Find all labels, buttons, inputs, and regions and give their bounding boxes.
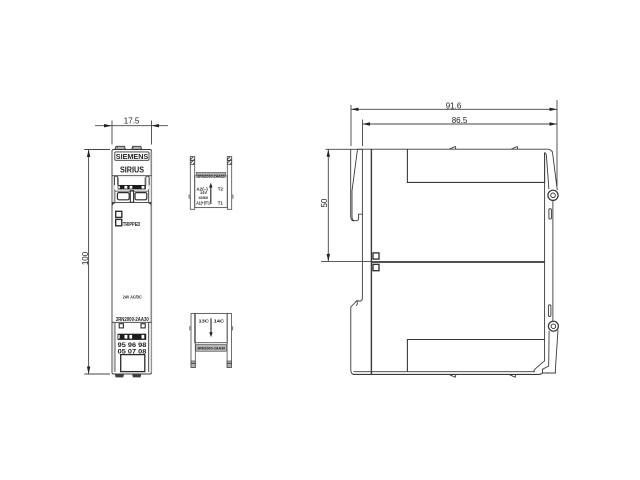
svg-text:24V AC/DC: 24V AC/DC <box>123 294 143 299</box>
svg-text:A1(+)/T1: A1(+)/T1 <box>196 201 210 206</box>
svg-text:100: 100 <box>81 251 90 265</box>
svg-text:3RN2000-2AA30: 3RN2000-2AA30 <box>197 175 225 179</box>
svg-text:13C: 13C <box>199 319 210 325</box>
svg-text:86.5: 86.5 <box>452 116 468 125</box>
svg-text:95 96 98: 95 96 98 <box>118 343 147 349</box>
svg-text:3RN2000-2AA30: 3RN2000-2AA30 <box>197 345 225 350</box>
svg-text:17.5: 17.5 <box>124 116 140 125</box>
svg-text:T1: T1 <box>218 201 224 206</box>
svg-text:14C: 14C <box>214 319 225 325</box>
svg-text:40/60: 40/60 <box>199 196 209 200</box>
svg-text:SIEMENS: SIEMENS <box>116 154 149 161</box>
svg-text:TRIPPED: TRIPPED <box>123 222 140 228</box>
svg-text:91.6: 91.6 <box>446 101 462 110</box>
svg-text:24V: 24V <box>200 191 207 195</box>
svg-text:50: 50 <box>320 198 329 207</box>
svg-text:SIRIUS: SIRIUS <box>120 165 144 174</box>
svg-text:T2: T2 <box>218 186 224 191</box>
